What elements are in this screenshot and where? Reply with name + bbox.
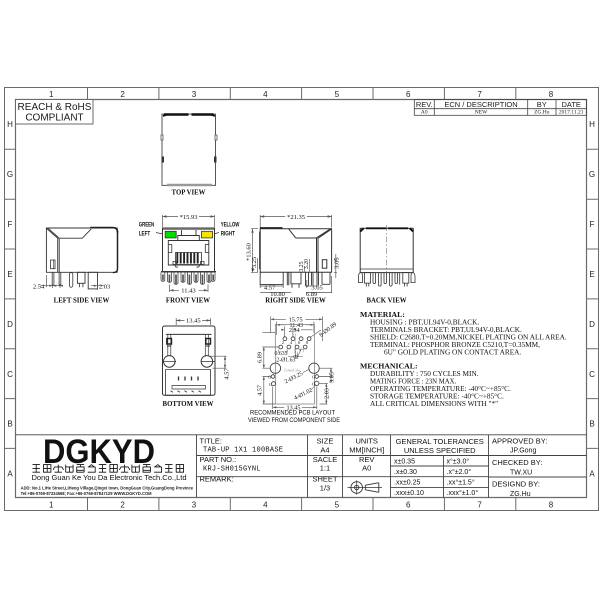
svg-text:F: F — [8, 220, 13, 229]
svg-text:4: 4 — [263, 90, 268, 99]
svg-text:D: D — [589, 320, 595, 329]
svg-text:H: H — [7, 120, 13, 129]
svg-text:*15.93: *15.93 — [180, 214, 198, 221]
svg-text:GENERAL TOLERANCES: GENERAL TOLERANCES — [396, 437, 484, 446]
svg-text:A: A — [589, 470, 595, 479]
svg-text:D: D — [7, 320, 13, 329]
svg-text:RIGHT: RIGHT — [221, 230, 235, 237]
svg-text:RECOMMENDED PCB LAYOUT: RECOMMENDED PCB LAYOUT — [250, 409, 335, 416]
svg-text:FRONT VIEW: FRONT VIEW — [166, 298, 210, 305]
svg-text:3: 3 — [192, 501, 197, 510]
svg-text:1: 1 — [49, 501, 54, 510]
svg-text:2.54: 2.54 — [33, 284, 45, 291]
svg-text:5: 5 — [335, 501, 340, 510]
svg-text:6: 6 — [406, 501, 411, 510]
svg-text:REACH & RoHS: REACH & RoHS — [18, 102, 92, 113]
svg-text:ALL CRITICAL DIMENSIONS WITH ": ALL CRITICAL DIMENSIONS WITH "*" — [370, 399, 498, 408]
svg-text:A4: A4 — [320, 446, 329, 455]
svg-text:2.03: 2.03 — [99, 284, 110, 291]
svg-text:TOP VIEW: TOP VIEW — [172, 190, 206, 197]
svg-text:.xxx°±1.0°: .xxx°±1.0° — [447, 489, 479, 497]
svg-text:4: 4 — [263, 501, 268, 510]
svg-text:2.03: 2.03 — [324, 388, 331, 399]
svg-text:.x°±2.0°: .x°±2.0° — [447, 468, 472, 476]
svg-text:A0: A0 — [362, 464, 371, 473]
svg-text:6U" GOLD PLATING ON CONTACT AR: 6U" GOLD PLATING ON CONTACT AREA. — [384, 348, 521, 357]
svg-text:B: B — [589, 420, 594, 429]
svg-text:TW.XU: TW.XU — [510, 470, 532, 477]
svg-text:F: F — [590, 220, 595, 229]
svg-text:BY: BY — [537, 100, 547, 109]
svg-text:RIGHT SIDE VIEW: RIGHT SIDE VIEW — [265, 298, 326, 305]
svg-text:COMPLIANT: COMPLIANT — [25, 113, 83, 124]
svg-text:7: 7 — [477, 90, 482, 99]
svg-text:2017.11.21: 2017.11.21 — [559, 110, 584, 116]
svg-text:SHEET: SHEET — [312, 475, 337, 484]
svg-text:UNITS: UNITS — [355, 437, 378, 446]
svg-text:H: H — [589, 120, 595, 129]
svg-text:ZG.Hu: ZG.Hu — [510, 491, 531, 498]
svg-text:BACK VIEW: BACK VIEW — [366, 298, 406, 305]
svg-text:x±0.35: x±0.35 — [394, 459, 415, 466]
svg-text:C: C — [589, 370, 595, 379]
svg-text:REMARK:: REMARK: — [200, 475, 234, 484]
svg-text:SIZE: SIZE — [317, 437, 334, 446]
svg-text:8: 8 — [549, 501, 554, 510]
svg-text:TAB-UP 1X1 100BASE: TAB-UP 1X1 100BASE — [203, 446, 283, 454]
svg-text:.xx±0.25: .xx±0.25 — [394, 480, 421, 487]
svg-text:DESIGND BY:: DESIGND BY: — [492, 480, 540, 489]
svg-text:3: 3 — [192, 90, 197, 99]
svg-text:KRJ-SH015GYNL: KRJ-SH015GYNL — [203, 466, 261, 474]
svg-text:DURABILITY : 750 CYCLES MIN.: DURABILITY : 750 CYCLES MIN. — [370, 369, 479, 378]
svg-text:BOTTOM VIEW: BOTTOM VIEW — [163, 401, 214, 408]
svg-text:TITLE:: TITLE: — [200, 437, 223, 446]
svg-text:UNLESS SPECIFIED: UNLESS SPECIFIED — [404, 446, 476, 455]
svg-text:G: G — [589, 170, 595, 179]
svg-text:4.57: 4.57 — [257, 385, 264, 396]
svg-text:LEFT SIDE VIEW: LEFT SIDE VIEW — [54, 298, 110, 305]
svg-text:2: 2 — [120, 90, 125, 99]
svg-text:13.45: 13.45 — [186, 318, 201, 325]
svg-text:1:1: 1:1 — [320, 464, 330, 473]
svg-text:3.25: 3.25 — [299, 261, 305, 271]
svg-text:2: 2 — [120, 501, 125, 510]
svg-text:CHECKED BY:: CHECKED BY: — [492, 458, 542, 467]
svg-text:DGKYD: DGKYD — [43, 433, 155, 471]
svg-text:.xx°±1.5°: .xx°±1.5° — [447, 479, 475, 487]
svg-text:1/3: 1/3 — [320, 484, 330, 493]
svg-text:E: E — [589, 270, 594, 279]
svg-text:B: B — [7, 420, 12, 429]
svg-text:*3.25: *3.25 — [251, 257, 258, 272]
svg-text:2.54: 2.54 — [289, 327, 300, 334]
svg-text:A0: A0 — [421, 110, 428, 116]
svg-text:4.57: 4.57 — [224, 368, 231, 380]
svg-text:NEW: NEW — [475, 110, 488, 116]
svg-text:LEFT: LEFT — [139, 230, 151, 237]
svg-text:ZG.Hu: ZG.Hu — [534, 110, 550, 116]
svg-text:8: 8 — [549, 90, 554, 99]
svg-text:YELLOW: YELLOW — [221, 222, 240, 229]
svg-text:0.635: 0.635 — [275, 351, 288, 357]
svg-text:*21.35: *21.35 — [287, 214, 305, 221]
svg-text:7: 7 — [477, 501, 482, 510]
svg-text:A: A — [7, 470, 13, 479]
svg-text:G: G — [7, 170, 13, 179]
svg-text:JP.Gong: JP.Gong — [510, 448, 536, 455]
svg-text:6: 6 — [406, 90, 411, 99]
svg-text:2-Ø1.63: 2-Ø1.63 — [276, 358, 295, 364]
svg-text:11.43: 11.43 — [181, 288, 195, 295]
svg-text:APPROVED BY:: APPROVED BY: — [492, 437, 547, 446]
svg-text:GREEN: GREEN — [139, 222, 155, 229]
svg-text:ECN / DESCRIPTION: ECN / DESCRIPTION — [444, 100, 517, 109]
svg-text:MM[INCH]: MM[INCH] — [349, 446, 384, 455]
svg-text:5: 5 — [335, 90, 340, 99]
svg-text:REV.: REV. — [416, 100, 433, 109]
svg-text:Dong Guan Ke You Da Electronic: Dong Guan Ke You Da Electronic Tech.Co.,… — [32, 473, 187, 482]
svg-text:3.05: 3.05 — [334, 257, 341, 268]
svg-text:VIEWED FROM COMPONENT SIDE: VIEWED FROM COMPONENT SIDE — [248, 417, 340, 424]
svg-text:C: C — [7, 370, 13, 379]
svg-text:1: 1 — [49, 90, 54, 99]
svg-text:6.89: 6.89 — [257, 352, 264, 363]
svg-text:E: E — [7, 270, 12, 279]
svg-text:Tel:+86-0769-87334568; Fax:+86: Tel:+86-0769-87334568; Fax:+86-0769-8784… — [21, 491, 152, 496]
svg-text:DATE: DATE — [561, 100, 580, 109]
svg-text:.x±0.30: .x±0.30 — [394, 469, 417, 476]
svg-text:x°±3.0°: x°±3.0° — [447, 458, 470, 466]
svg-text:2: 2 — [282, 340, 284, 345]
svg-text:PART NO.:: PART NO.: — [200, 455, 237, 464]
svg-text:3.05: 3.05 — [329, 372, 336, 383]
svg-text:.xxx±0.10: .xxx±0.10 — [394, 490, 424, 497]
